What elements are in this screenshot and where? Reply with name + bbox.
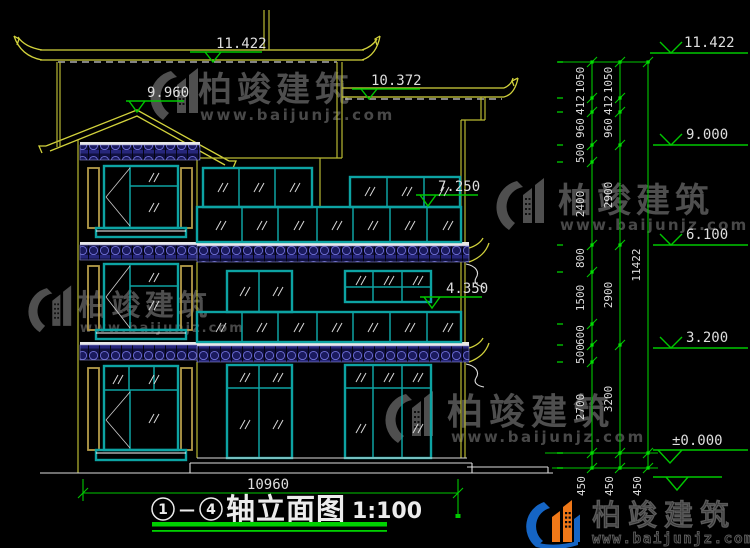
level-marker-top: 11.422 — [190, 36, 267, 62]
attic-window-left — [203, 168, 312, 207]
dim-label: 500 — [574, 143, 587, 163]
dim-label: 450 — [575, 476, 588, 496]
cad-elevation-viewport: 柏竣建筑 www.baijunjz.com 柏竣建筑 www.baijunjz.… — [0, 0, 750, 548]
title-scale: 1:100 — [352, 499, 422, 524]
drawing-title: 1 — 4 轴立面图 1:100 — [152, 492, 422, 532]
right-level-1: 11.422 — [650, 35, 748, 53]
dim-label: 11422 — [630, 248, 643, 281]
level-text: 4.350 — [446, 281, 488, 297]
elevation-drawing-canvas: 柏竣建筑 www.baijunjz.com 柏竣建筑 www.baijunjz.… — [0, 0, 750, 548]
bay-tile-band-3f — [80, 142, 200, 160]
window-2f-left — [227, 271, 292, 312]
level-text: 11.422 — [684, 35, 735, 51]
window-2f-right — [345, 271, 431, 302]
dim-label: 2900 — [602, 182, 615, 209]
level-text: 3.200 — [686, 330, 728, 346]
brand-logo-text: 柏竣建筑 — [592, 498, 736, 532]
dim-label: 412 — [574, 95, 587, 115]
dim-label: 2900 — [602, 282, 615, 309]
dim-label: 960 — [574, 118, 587, 138]
dim-label: 1500 — [574, 285, 587, 312]
level-text: 11.422 — [216, 36, 267, 52]
bay-tile-band-1f — [80, 342, 200, 360]
level-text: ±0.000 — [672, 433, 723, 449]
right-level-4: 3.200 — [653, 330, 748, 348]
dim-label: 1050 — [574, 67, 587, 94]
dim-label: 450 — [631, 476, 644, 496]
watermark-url: www.baijunjz.com — [200, 106, 395, 124]
level-text: 9.000 — [686, 127, 728, 143]
bottom-dim-text: 10960 — [247, 477, 289, 493]
level-text: 10.372 — [371, 73, 422, 89]
title-underline-thin — [152, 530, 387, 532]
bay-window-3f — [88, 166, 192, 237]
level-text: 6.100 — [686, 227, 728, 243]
gutter-curl-icon — [466, 364, 484, 387]
dim-label: 600 — [574, 325, 587, 345]
door-unit-left — [227, 365, 292, 458]
title-text: 轴立面图 — [226, 492, 346, 526]
window-strip-3f — [197, 207, 461, 242]
dim-label: 500 — [574, 344, 587, 364]
axis-end-number: 4 — [206, 502, 216, 518]
right-level-2: 9.000 — [653, 127, 748, 145]
watermark-url: www.baijunjz.com — [451, 428, 646, 446]
bay-tile-band-2f — [80, 242, 200, 260]
brand-logo-icon — [526, 500, 580, 548]
watermark-3: 柏竣建筑 www.baijunjz.com — [28, 285, 244, 336]
brand-logo-url: www.baijunjz.com — [592, 531, 750, 547]
dim-label: 2400 — [574, 191, 587, 218]
dim-label: 450 — [603, 476, 616, 496]
title-underline-thick — [152, 522, 387, 527]
main-tile-band-upper — [197, 238, 489, 287]
watermark-2: 柏竣建筑 www.baijunjz.com — [496, 178, 748, 234]
watermark-brand: 柏竣建筑 — [198, 70, 354, 110]
dim-label: 412 — [602, 95, 615, 115]
level-marker-roof2: 10.372 — [352, 73, 422, 99]
level-marker-floor3: 7.250 — [416, 179, 480, 206]
level-text: 7.250 — [438, 179, 480, 195]
axis-dash: — — [179, 500, 195, 519]
dim-label: 800 — [574, 248, 587, 268]
dim-label: 3200 — [602, 386, 615, 413]
right-level-0: ±0.000 — [653, 433, 748, 490]
watermark-brand: 柏竣建筑 — [447, 392, 615, 433]
axis-start-number: 1 — [158, 502, 168, 518]
secondary-roof — [342, 78, 518, 97]
dim-label: 2700 — [574, 394, 587, 421]
dim-label: 1050 — [602, 67, 615, 94]
bay-window-1f — [88, 366, 192, 460]
brand-logo: 柏竣建筑 www.baijunjz.com — [526, 498, 750, 548]
level-text: 9.960 — [147, 85, 189, 101]
dim-label: 960 — [602, 118, 615, 138]
